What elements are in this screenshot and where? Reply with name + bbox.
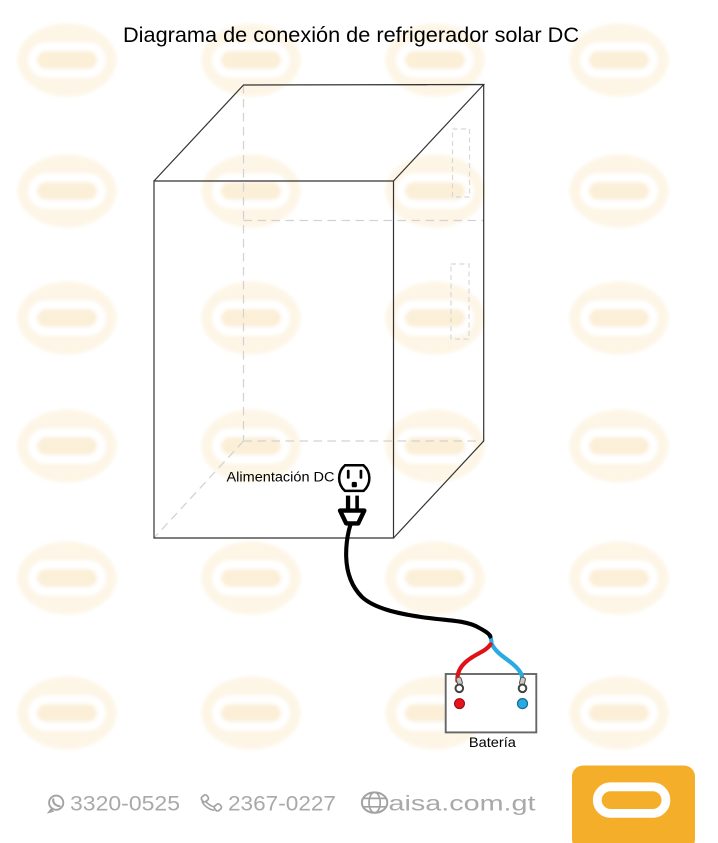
svg-text:Diagrama de conexión de refrig: Diagrama de conexión de refrigerador sol… (123, 23, 579, 47)
svg-text:aisa.com.gt: aisa.com.gt (389, 793, 536, 816)
svg-text:2367-0227: 2367-0227 (228, 793, 336, 816)
svg-text:3320-0525: 3320-0525 (70, 793, 180, 816)
svg-text:Batería: Batería (469, 734, 516, 750)
svg-text:Alimentación DC: Alimentación DC (227, 470, 335, 485)
